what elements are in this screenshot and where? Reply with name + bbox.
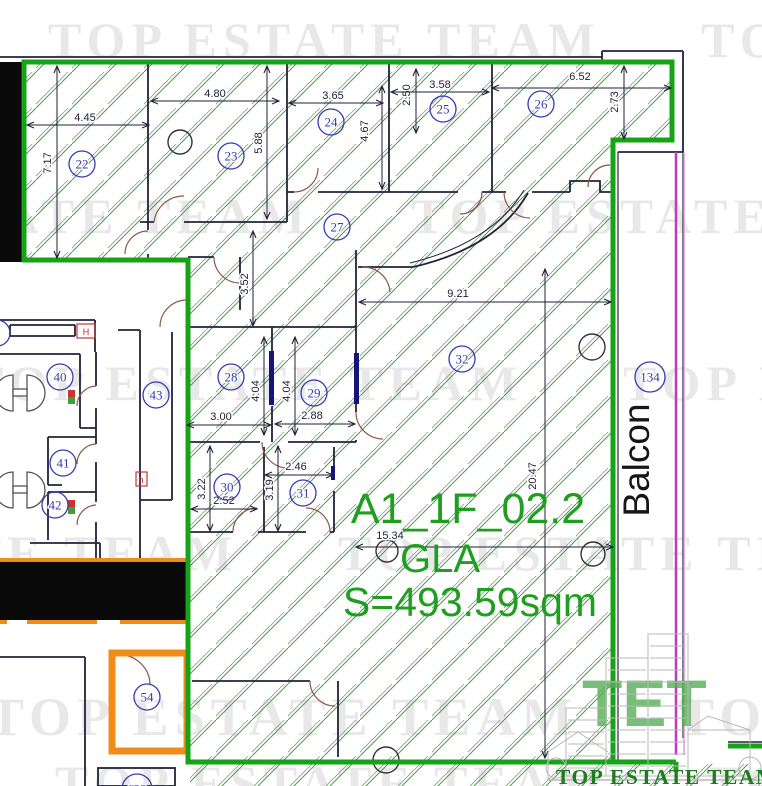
room-number: 31 bbox=[297, 486, 310, 501]
dimension-text: 4.04 bbox=[281, 380, 293, 401]
dimension-text: 3.52 bbox=[239, 273, 251, 294]
balcony-label: Balcon bbox=[616, 403, 657, 516]
dimension-text: 3.58 bbox=[429, 79, 450, 91]
room-number: 41 bbox=[57, 456, 70, 471]
dimension-text: 4.67 bbox=[359, 120, 371, 141]
room-number: 40 bbox=[54, 370, 67, 385]
floor-plan-drawing: TOP ESTATE TEAMTOP ESTATE TEAMTOP ESTATE… bbox=[0, 0, 762, 786]
room-number: 28 bbox=[225, 370, 238, 385]
dimension-text: 5.88 bbox=[253, 132, 265, 153]
room-number: 24 bbox=[325, 115, 339, 130]
dimension-text: 2.50 bbox=[401, 84, 413, 105]
dimension-text: 4.45 bbox=[74, 112, 95, 124]
room-number: 30 bbox=[221, 480, 234, 495]
dimension-text: 2.52 bbox=[213, 495, 234, 507]
room-number: 32 bbox=[456, 352, 469, 367]
floor-plan-page: TOP ESTATE TEAMTOP ESTATE TEAMTOP ESTATE… bbox=[0, 0, 762, 786]
unit-id-label: A1_1F_02.2 bbox=[351, 485, 585, 533]
dimension-text: 7.17 bbox=[42, 152, 54, 173]
dimension-text: 3.22 bbox=[196, 478, 208, 499]
dimension-text: 3.65 bbox=[322, 90, 343, 102]
room-number: 43 bbox=[150, 388, 163, 403]
dimension-text: 2.73 bbox=[609, 91, 621, 112]
room-number: 29 bbox=[308, 386, 321, 401]
room-number: 25 bbox=[437, 102, 450, 117]
room-number: 23 bbox=[225, 149, 238, 164]
room-number: 27 bbox=[331, 220, 345, 235]
unit-area-label: S=493.59sqm bbox=[343, 579, 597, 625]
dimension-text: 9.21 bbox=[447, 288, 468, 300]
room-number-circle bbox=[0, 320, 10, 346]
room-number: 42 bbox=[49, 498, 62, 513]
dimension-text: 4.04 bbox=[250, 380, 262, 401]
elevator-symbols bbox=[0, 375, 45, 508]
equipment-label: H bbox=[83, 327, 90, 337]
dimension-text: 6.52 bbox=[569, 71, 590, 83]
dimension-text: 2.88 bbox=[301, 410, 322, 422]
dimension-text: 3.00 bbox=[210, 411, 231, 423]
room-number: 54 bbox=[141, 690, 155, 705]
unit-type-label: GLA bbox=[400, 537, 480, 581]
room-number: 122 bbox=[127, 782, 147, 786]
dimension-text: 4.80 bbox=[204, 88, 225, 100]
dimension-text: 2.46 bbox=[285, 461, 306, 473]
room-number: 22 bbox=[76, 157, 89, 172]
dimension-text: 3.19 bbox=[264, 479, 276, 500]
room-number: 26 bbox=[535, 97, 549, 112]
equipment-label: h bbox=[138, 475, 143, 485]
logo-caption: TOP ESTATE TEAM bbox=[556, 765, 762, 786]
room-number: 134 bbox=[640, 370, 660, 385]
